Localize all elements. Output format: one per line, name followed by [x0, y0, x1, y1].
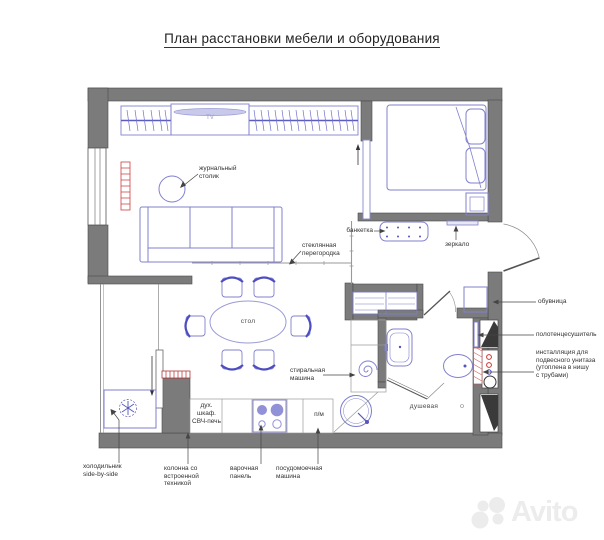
wall-left-mid [88, 225, 108, 283]
wall-right-upper [488, 100, 502, 222]
walls [88, 88, 502, 448]
kitchen-column-wall [162, 378, 190, 433]
label-bench: банкетка [340, 227, 373, 235]
closet-left-wall [345, 283, 353, 320]
toilet [444, 355, 473, 378]
window-left [88, 148, 106, 225]
washing-machine-icon [359, 361, 377, 377]
chair [253, 350, 275, 370]
avito-logo-icon [470, 493, 508, 531]
label-appliance-column: колонна со встроенной техникой [164, 465, 199, 488]
towel-dryer [474, 322, 478, 347]
pillow [466, 148, 485, 183]
tap-icon [358, 413, 366, 421]
bed [387, 105, 486, 190]
column-hatch [162, 371, 190, 378]
bath-top-right-wall [457, 308, 488, 318]
label-towel-dryer: полотенцесушитель [536, 331, 597, 339]
bathroom-door [424, 291, 456, 315]
wall-left-top [88, 88, 108, 148]
fridge [104, 390, 156, 428]
label-shoe-cabinet: обувница [538, 298, 566, 306]
mirror [447, 221, 478, 225]
chair [221, 350, 243, 370]
avito-watermark: Avito [470, 493, 577, 531]
snowflake-icon [122, 401, 134, 415]
label-dishwasher-short: п/м [305, 411, 333, 419]
label-oven-microwave: дух. шкаф. СВЧ-печь [191, 402, 222, 426]
bench-buttons [386, 227, 421, 238]
bench [380, 222, 428, 241]
label-tv: TV [195, 115, 225, 123]
chair [221, 278, 243, 298]
pocket-door-jamb [361, 101, 372, 141]
bathroom-sink [385, 329, 413, 366]
wall-top [88, 88, 502, 101]
loggia-glazing [101, 284, 159, 433]
pocket-door [356, 140, 370, 219]
wall-bottom [99, 433, 502, 448]
wall-bedroom-partition [358, 213, 488, 221]
closet-top-wall [353, 284, 417, 292]
bath-left-stub [378, 382, 386, 388]
shower-drain-icon [461, 405, 464, 408]
burner-icon [271, 404, 284, 417]
label-washing-machine: стиральная машина [290, 367, 325, 382]
label-coffee-table: журнальный столик [199, 165, 237, 180]
chair [186, 315, 206, 337]
label-dining-table: стол [228, 318, 268, 326]
corner-sink [341, 396, 372, 427]
label-fridge: холодильник side-by-side [83, 463, 122, 478]
sofa [140, 207, 282, 262]
pillow [466, 109, 485, 144]
radiator [121, 162, 130, 210]
floor-plan-page: План расстановки мебели и оборудования [0, 0, 604, 540]
entrance-door [504, 224, 540, 271]
wall-living-bottom [88, 276, 192, 284]
chair [253, 278, 275, 298]
burner-icon [257, 405, 267, 415]
label-dishwasher: посудомоечная машина [276, 465, 322, 480]
floor-plan-svg [0, 0, 604, 540]
chair [291, 315, 311, 337]
label-glass-partition: стеклянная перегородка [302, 242, 340, 257]
closet-right-wall [417, 284, 423, 314]
installation-hatch [473, 346, 482, 384]
nightstand [466, 193, 488, 215]
avito-watermark-text: Avito [511, 496, 577, 529]
label-mirror: зеркало [445, 241, 469, 249]
label-toilet-installation: инсталляция для подвесного унитаза (утоп… [536, 349, 595, 379]
label-hob: варочная панель [230, 465, 258, 480]
label-shower: душевая [403, 403, 445, 411]
coffee-table [159, 176, 185, 202]
